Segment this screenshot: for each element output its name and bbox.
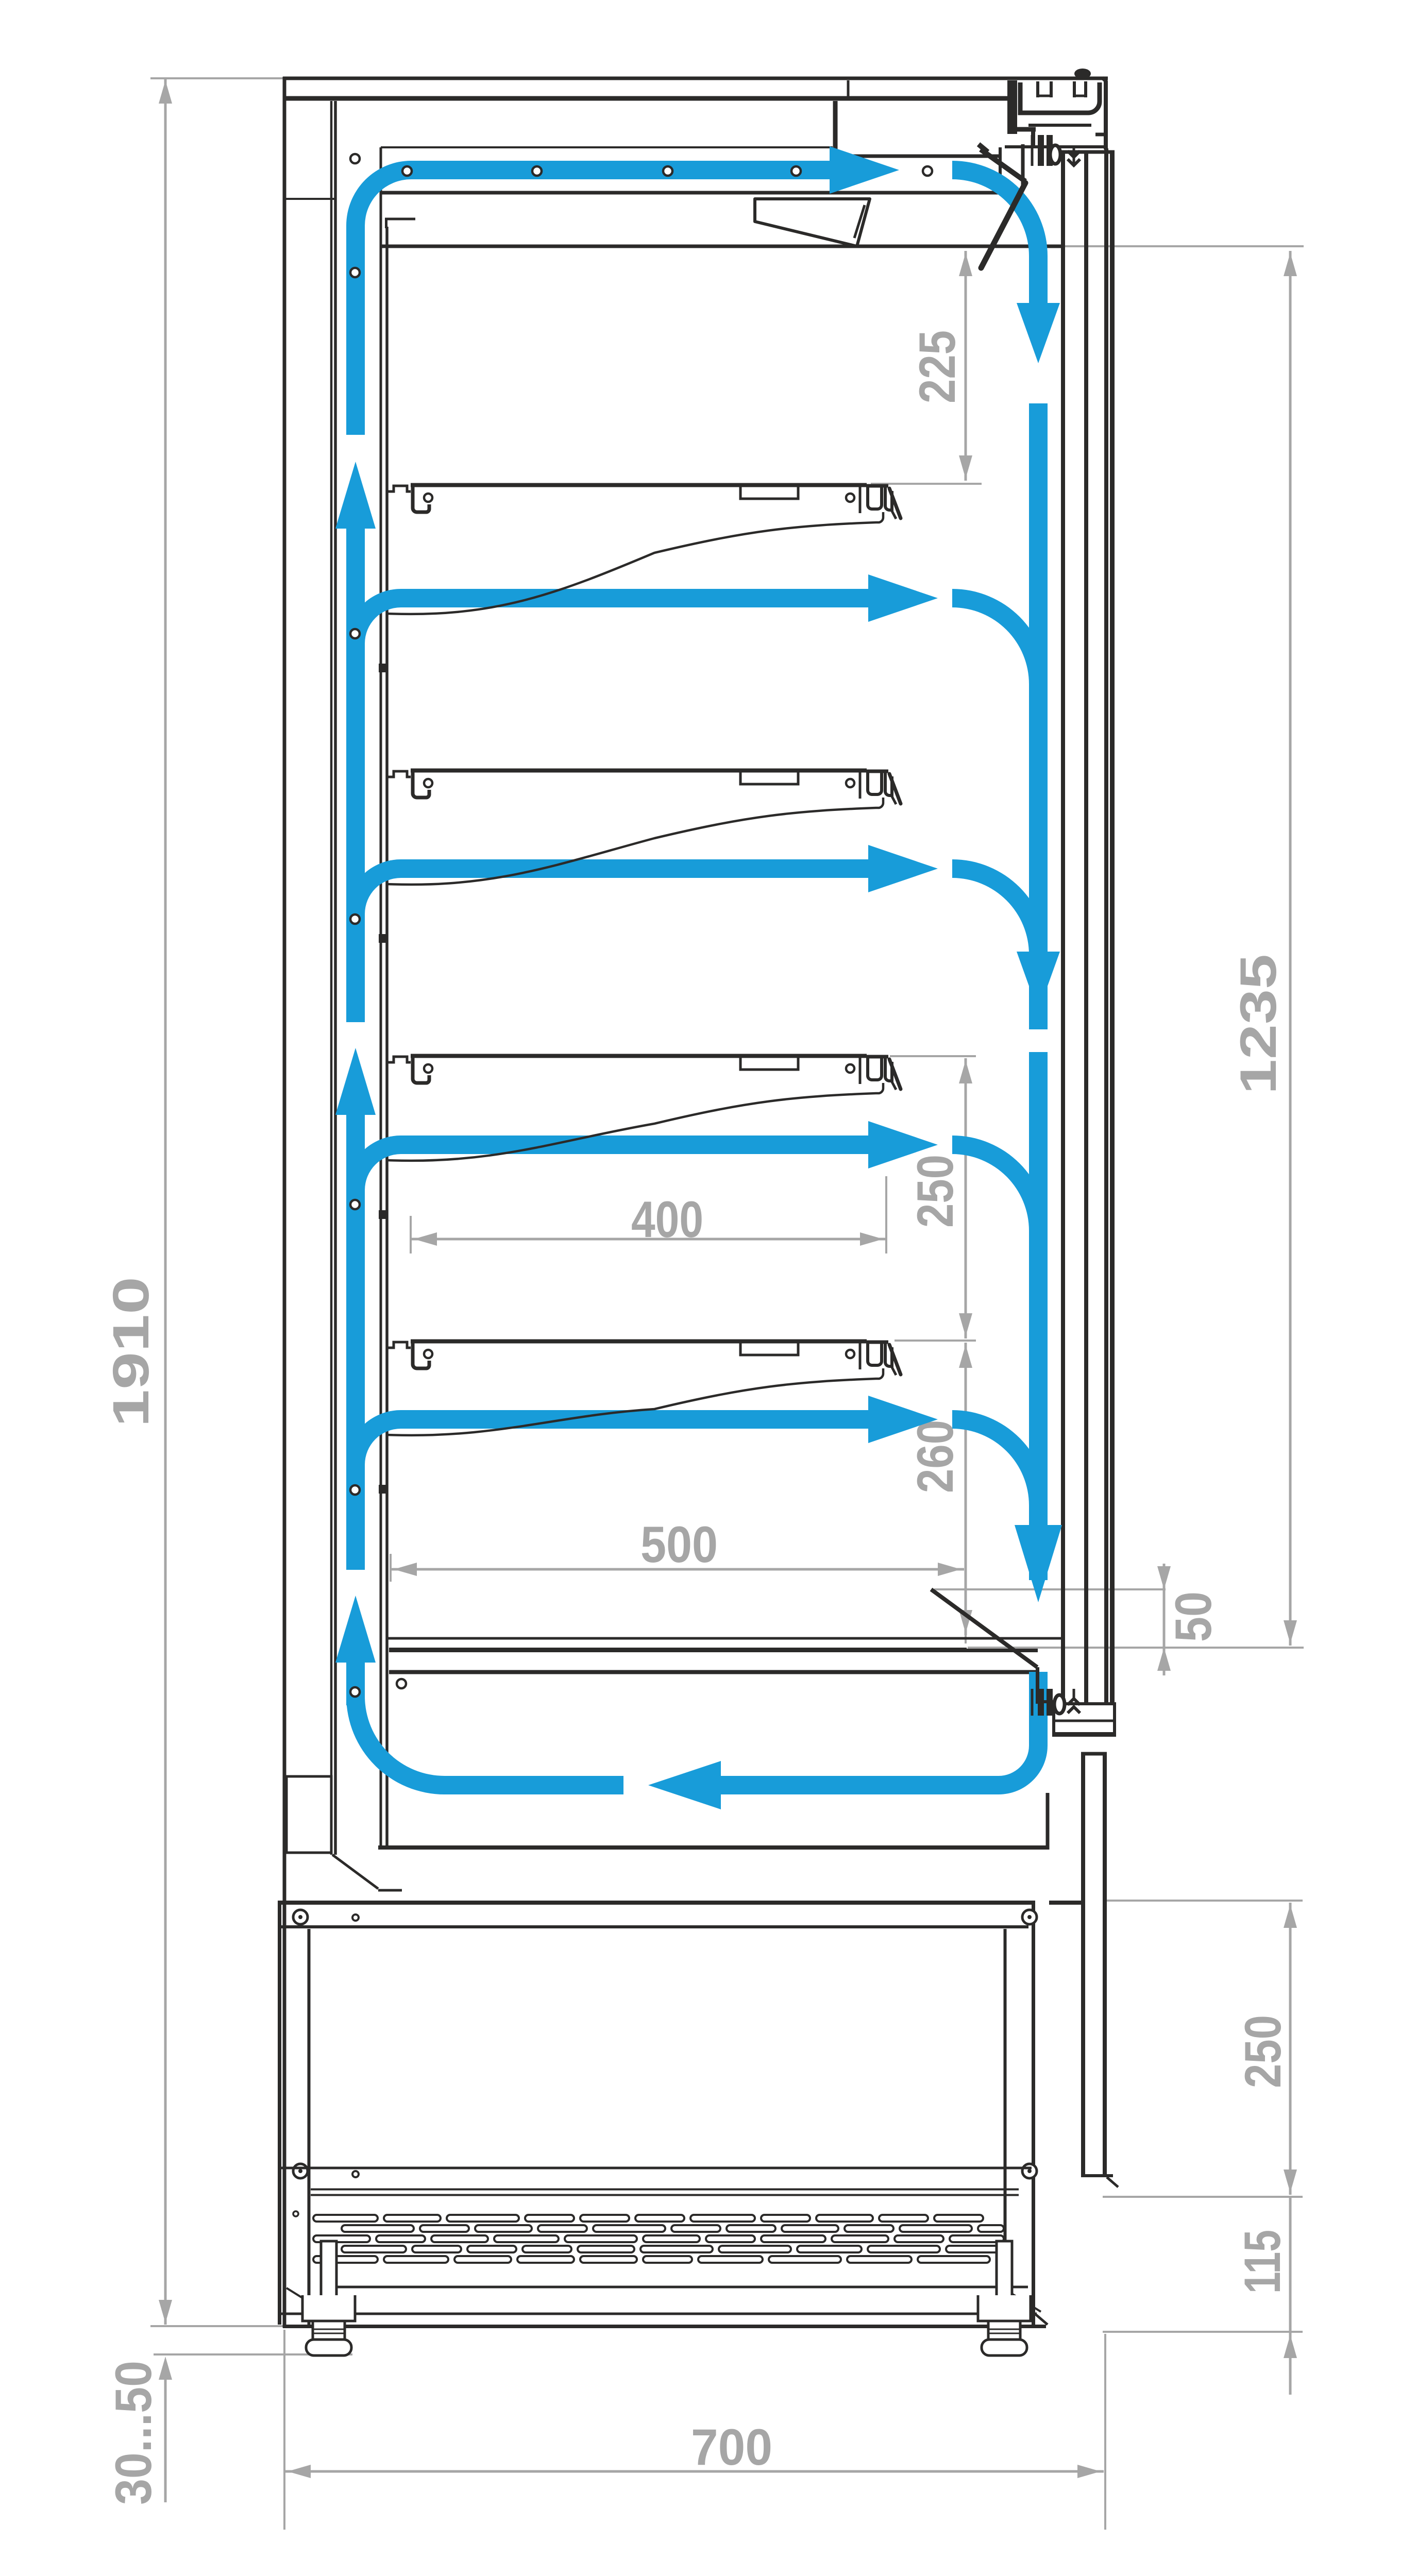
svg-text:400: 400 [631,1191,703,1248]
svg-text:1910: 1910 [102,1277,159,1427]
svg-text:50: 50 [1165,1591,1222,1642]
svg-text:500: 500 [640,1516,718,1573]
svg-text:1235: 1235 [1229,954,1287,1094]
svg-text:115: 115 [1234,2230,1291,2294]
svg-text:30...50: 30...50 [105,2361,162,2505]
svg-text:250: 250 [1234,2015,1291,2088]
svg-text:260: 260 [906,1420,964,1493]
svg-text:250: 250 [906,1155,964,1228]
svg-text:700: 700 [691,2418,772,2476]
svg-text:225: 225 [908,330,966,403]
